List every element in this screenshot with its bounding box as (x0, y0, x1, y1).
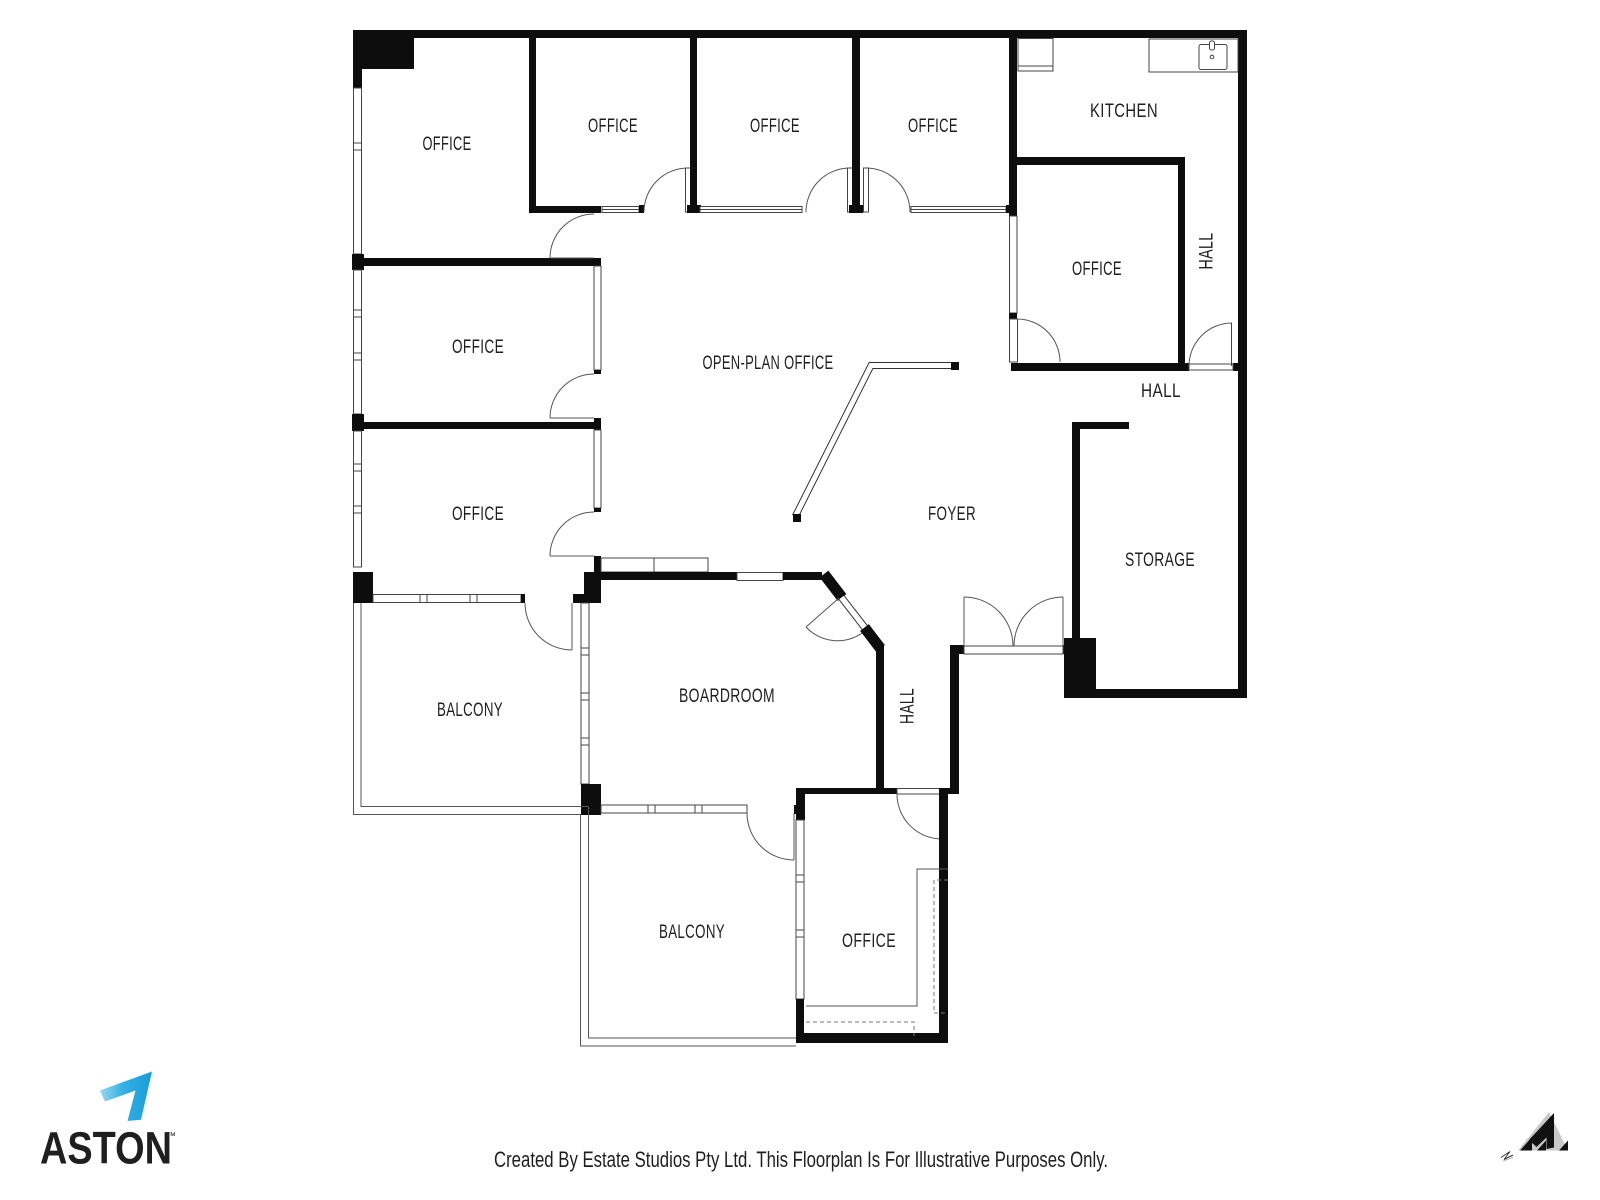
svg-text:KITCHEN: KITCHEN (1090, 101, 1158, 122)
svg-text:OFFICE: OFFICE (588, 116, 638, 137)
svg-text:OFFICE: OFFICE (452, 337, 504, 358)
svg-text:OPEN-PLAN OFFICE: OPEN-PLAN OFFICE (703, 353, 834, 374)
svg-text:HALL: HALL (898, 688, 919, 724)
svg-text:HALL: HALL (1141, 381, 1181, 402)
svg-text:BALCONY: BALCONY (437, 700, 503, 721)
svg-text:OFFICE: OFFICE (842, 931, 896, 952)
svg-text:OFFICE: OFFICE (750, 116, 800, 137)
svg-text:OFFICE: OFFICE (423, 134, 472, 155)
svg-text:Created By Estate Studios Pty: Created By Estate Studios Pty Ltd. This … (494, 1147, 1108, 1172)
svg-text:OFFICE: OFFICE (452, 504, 504, 525)
svg-text:HALL: HALL (1197, 233, 1218, 270)
svg-text:FOYER: FOYER (928, 504, 976, 525)
svg-text:™: ™ (166, 1131, 176, 1142)
svg-text:OFFICE: OFFICE (908, 116, 958, 137)
svg-text:ASTON: ASTON (40, 1123, 172, 1174)
svg-text:STORAGE: STORAGE (1125, 550, 1195, 571)
svg-text:BALCONY: BALCONY (659, 922, 725, 943)
svg-text:BOARDROOM: BOARDROOM (679, 686, 775, 707)
svg-text:OFFICE: OFFICE (1072, 259, 1122, 280)
